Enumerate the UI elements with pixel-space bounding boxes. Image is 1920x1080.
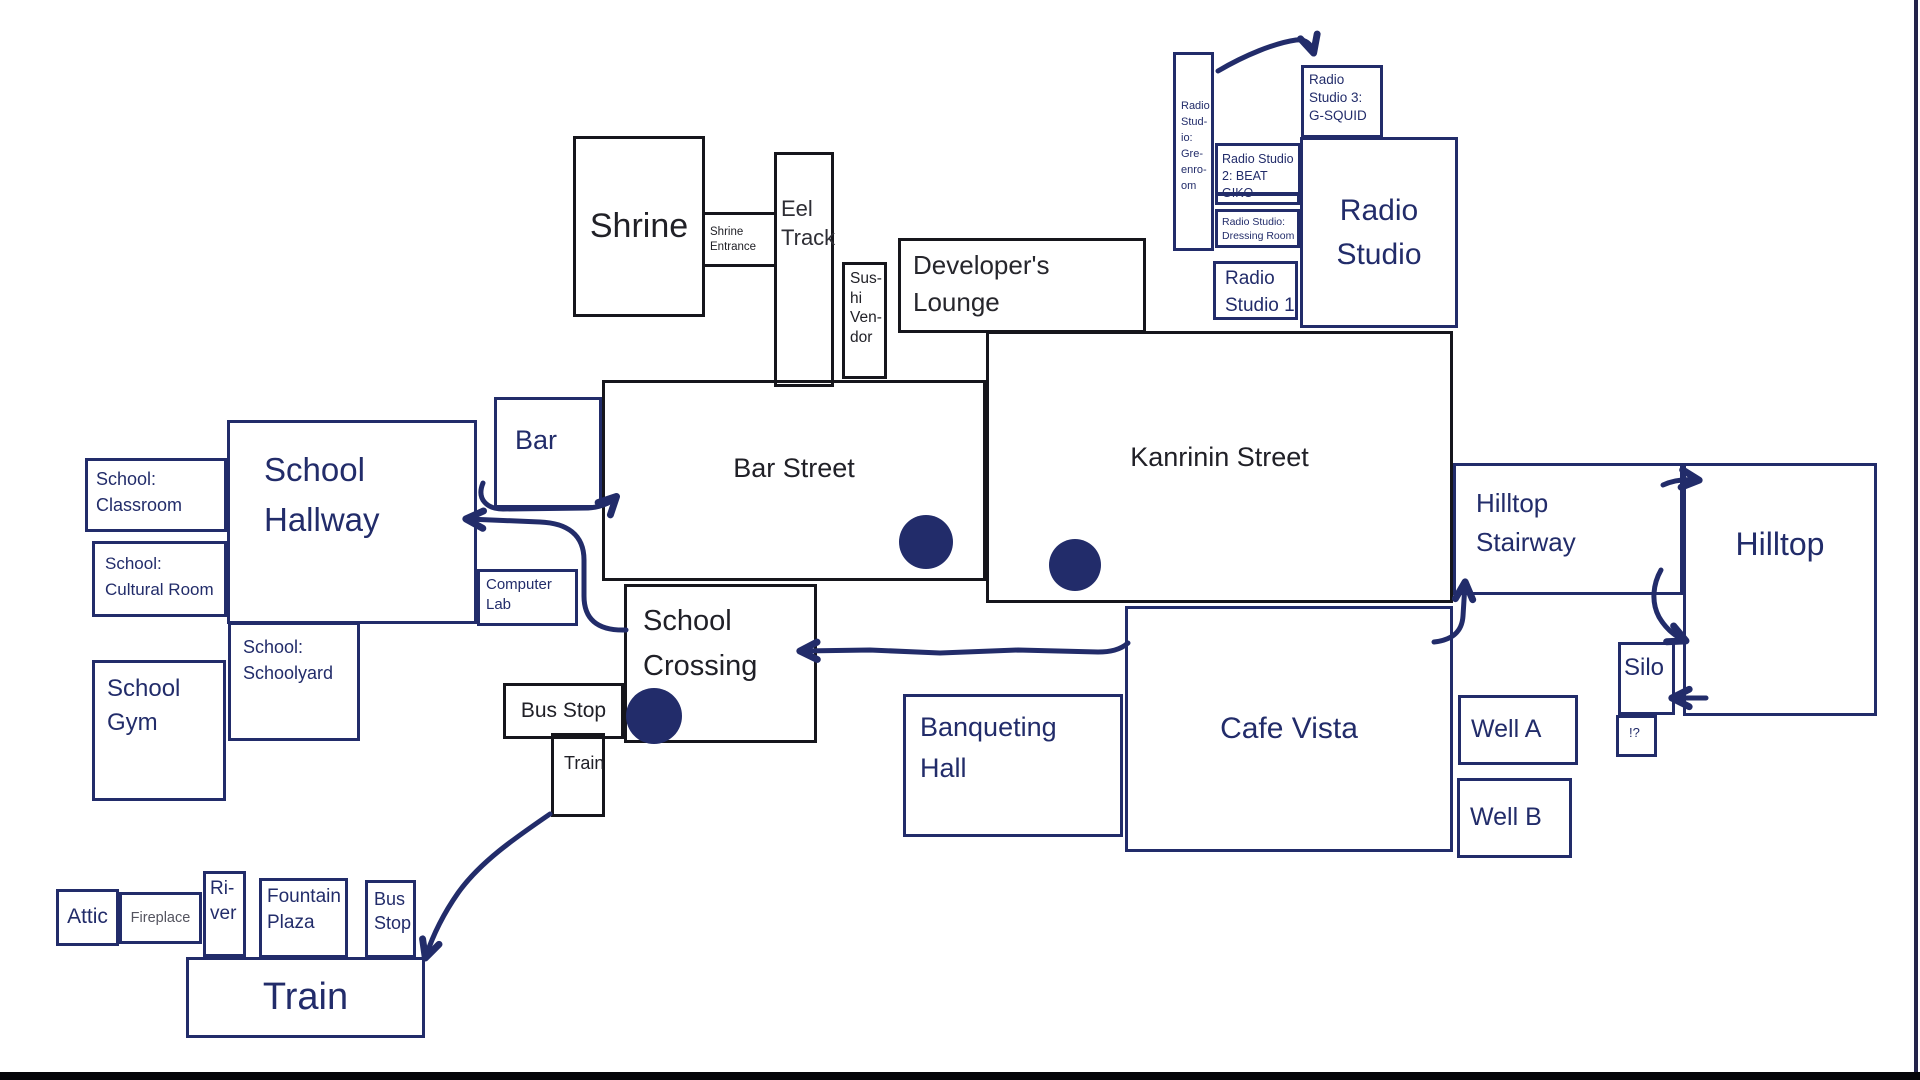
canvas-right-border — [1914, 0, 1918, 1073]
arrow-cafe-to-crossing-icon — [802, 643, 1128, 653]
room-shrine-entrance: Shrine Entrance — [705, 212, 774, 267]
room-fountain-plaza: Fountain Plaza — [259, 878, 348, 958]
room-fireplace: Fireplace — [119, 892, 202, 944]
room-radio-studio-1: Radio Studio 1 — [1213, 261, 1298, 320]
room-cafe-vista: Cafe Vista — [1125, 606, 1453, 852]
arrow-greenroom-to-studio3-icon — [1218, 40, 1313, 71]
room-school-hallway: School Hallway — [227, 420, 477, 624]
room-school-gym: School Gym — [92, 660, 226, 801]
room-bar-street: Bar Street — [602, 380, 986, 581]
room-kanrinin-street: Kanrinin Street — [986, 331, 1453, 603]
room-banqueting-hall: Banqueting Hall — [903, 694, 1123, 837]
room-silo: Silo — [1618, 642, 1675, 715]
room-hilltop: Hilltop — [1683, 463, 1877, 716]
room-attic: Attic — [56, 889, 119, 946]
room-sushi-vendor: Sus- hi Ven- dor — [842, 262, 887, 379]
room-radio-studio-2: Radio Studio 2: BEAT GIKO — [1215, 143, 1301, 195]
room-radio-studio-annex — [1215, 193, 1300, 205]
room-bus-stop-north: Bus Stop — [503, 683, 624, 739]
room-bar: Bar — [494, 397, 602, 508]
room-developers-lounge: Developer's Lounge — [898, 238, 1146, 333]
room-bus-stop-south: Bus Stop — [365, 880, 416, 958]
room-eel-track: Eel Track — [774, 152, 834, 387]
room-school-cultural-room: School: Cultural Room — [92, 541, 227, 617]
room-school-crossing: School Crossing — [624, 584, 817, 743]
room-radio-dressing-room: Radio Studio: Dressing Room — [1215, 209, 1300, 248]
room-school-schoolyard: School: Schoolyard — [228, 622, 360, 741]
arrow-trainstop-to-station-icon — [426, 814, 550, 956]
room-unknown: !? — [1616, 715, 1657, 757]
canvas-bottom-bar — [0, 1072, 1920, 1080]
room-shrine: Shrine — [573, 136, 705, 317]
room-school-classroom: School: Classroom — [85, 458, 227, 532]
room-train-station: Train — [186, 957, 425, 1038]
room-radio-studio-main: Radio Studio — [1300, 137, 1458, 328]
room-computer-lab: Computer Lab — [477, 569, 578, 626]
room-hilltop-stairway: Hilltop Stairway — [1453, 463, 1683, 595]
room-train-stop: Train — [551, 733, 605, 817]
room-radio-greenroom: Radio Stud- io: Gre- enro- om — [1173, 52, 1214, 251]
room-river: Ri- ver — [203, 871, 246, 957]
room-well-a: Well A — [1458, 695, 1578, 765]
room-well-b: Well B — [1457, 778, 1572, 858]
map-canvas: Shrine Shrine Entrance Eel Track Sus- hi… — [0, 0, 1920, 1080]
room-radio-studio-3: Radio Studio 3: G-SQUID — [1301, 65, 1383, 138]
